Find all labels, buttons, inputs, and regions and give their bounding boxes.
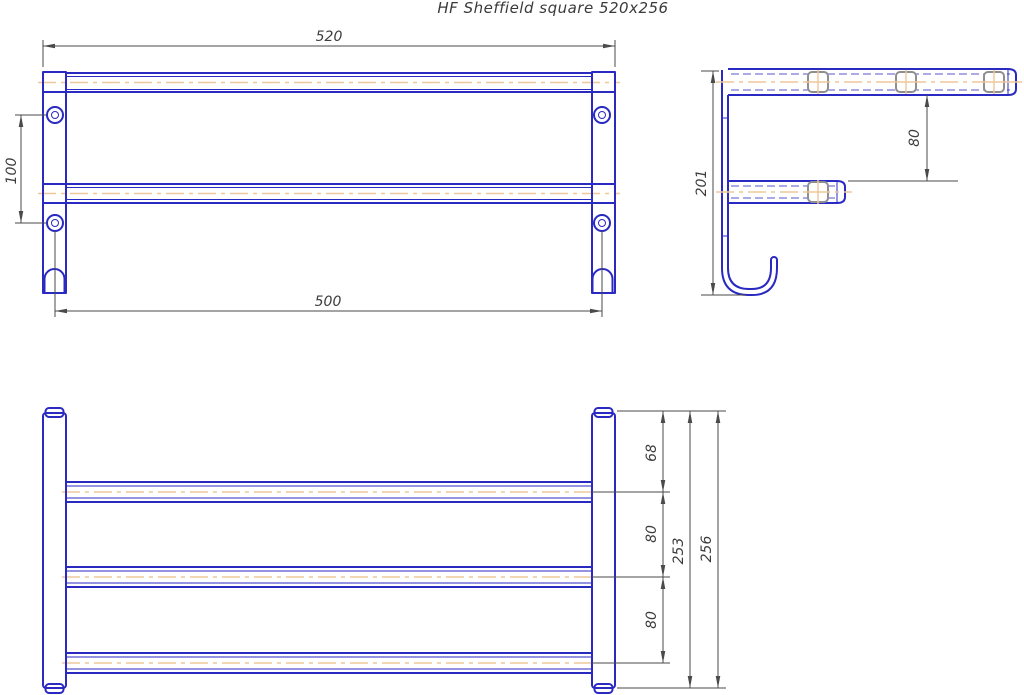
dim-hole-spacing: 100 <box>4 115 46 223</box>
mounting-hole <box>47 107 63 123</box>
top-shelf <box>716 69 1022 95</box>
dim-overall-height-front: 256 <box>699 411 718 688</box>
towel-bar-top <box>38 73 620 92</box>
drawing-canvas: HF Sheffield square 520x256 <box>0 0 1024 695</box>
wall-post <box>722 70 777 295</box>
mounting-hole-inner <box>599 220 606 227</box>
dim-bars-span: 253 <box>671 411 690 688</box>
dim-first-to-second-bar: 80 <box>644 492 663 577</box>
plan-view: 520 100 500 <box>4 29 620 317</box>
post-outline <box>592 72 615 293</box>
dim-shelf-gap: 80 <box>848 95 958 181</box>
towel-bar-middle <box>38 184 620 203</box>
dim-mounting-span: 500 <box>55 231 602 317</box>
mounting-hole <box>47 215 63 231</box>
dim-label-80b: 80 <box>644 611 660 629</box>
drawing-sheet: HF Sheffield square 520x256 <box>0 0 1024 695</box>
mounting-hole-inner <box>599 112 606 119</box>
towel-bar-1 <box>62 482 596 502</box>
dim-label-256: 256 <box>699 536 715 563</box>
dim-label-201: 201 <box>694 170 710 197</box>
left-post-front <box>43 408 66 693</box>
drawing-title: HF Sheffield square 520x256 <box>437 0 668 17</box>
dim-label-520: 520 <box>316 29 343 45</box>
dim-label-100: 100 <box>4 158 20 185</box>
dim-top-to-first-bar: 68 <box>644 411 663 492</box>
front-view: 68 80 80 253 256 <box>43 408 726 693</box>
dim-second-to-third-bar: 80 <box>644 577 663 663</box>
dim-label-68: 68 <box>644 444 660 462</box>
dim-label-500: 500 <box>315 294 342 310</box>
towel-bar-2 <box>62 567 596 587</box>
post-outline <box>592 413 615 688</box>
right-post <box>592 72 615 293</box>
post-outer-profile <box>722 70 777 295</box>
mounting-hole <box>594 215 610 231</box>
middle-bar <box>716 180 852 204</box>
mounting-hole-inner <box>52 112 59 119</box>
dim-label-80a: 80 <box>644 525 660 543</box>
dim-label-253: 253 <box>671 538 687 565</box>
towel-bar-3 <box>62 653 596 673</box>
mounting-hole <box>594 107 610 123</box>
right-post-front <box>592 408 615 693</box>
hook-tip <box>771 257 777 260</box>
side-view: 201 80 <box>694 69 1022 295</box>
post-outline <box>43 413 66 688</box>
mounting-hole-inner <box>52 220 59 227</box>
dim-overall-width: 520 <box>43 29 615 67</box>
dim-label-80: 80 <box>907 129 923 147</box>
dim-overall-height-side: 201 <box>694 71 746 295</box>
